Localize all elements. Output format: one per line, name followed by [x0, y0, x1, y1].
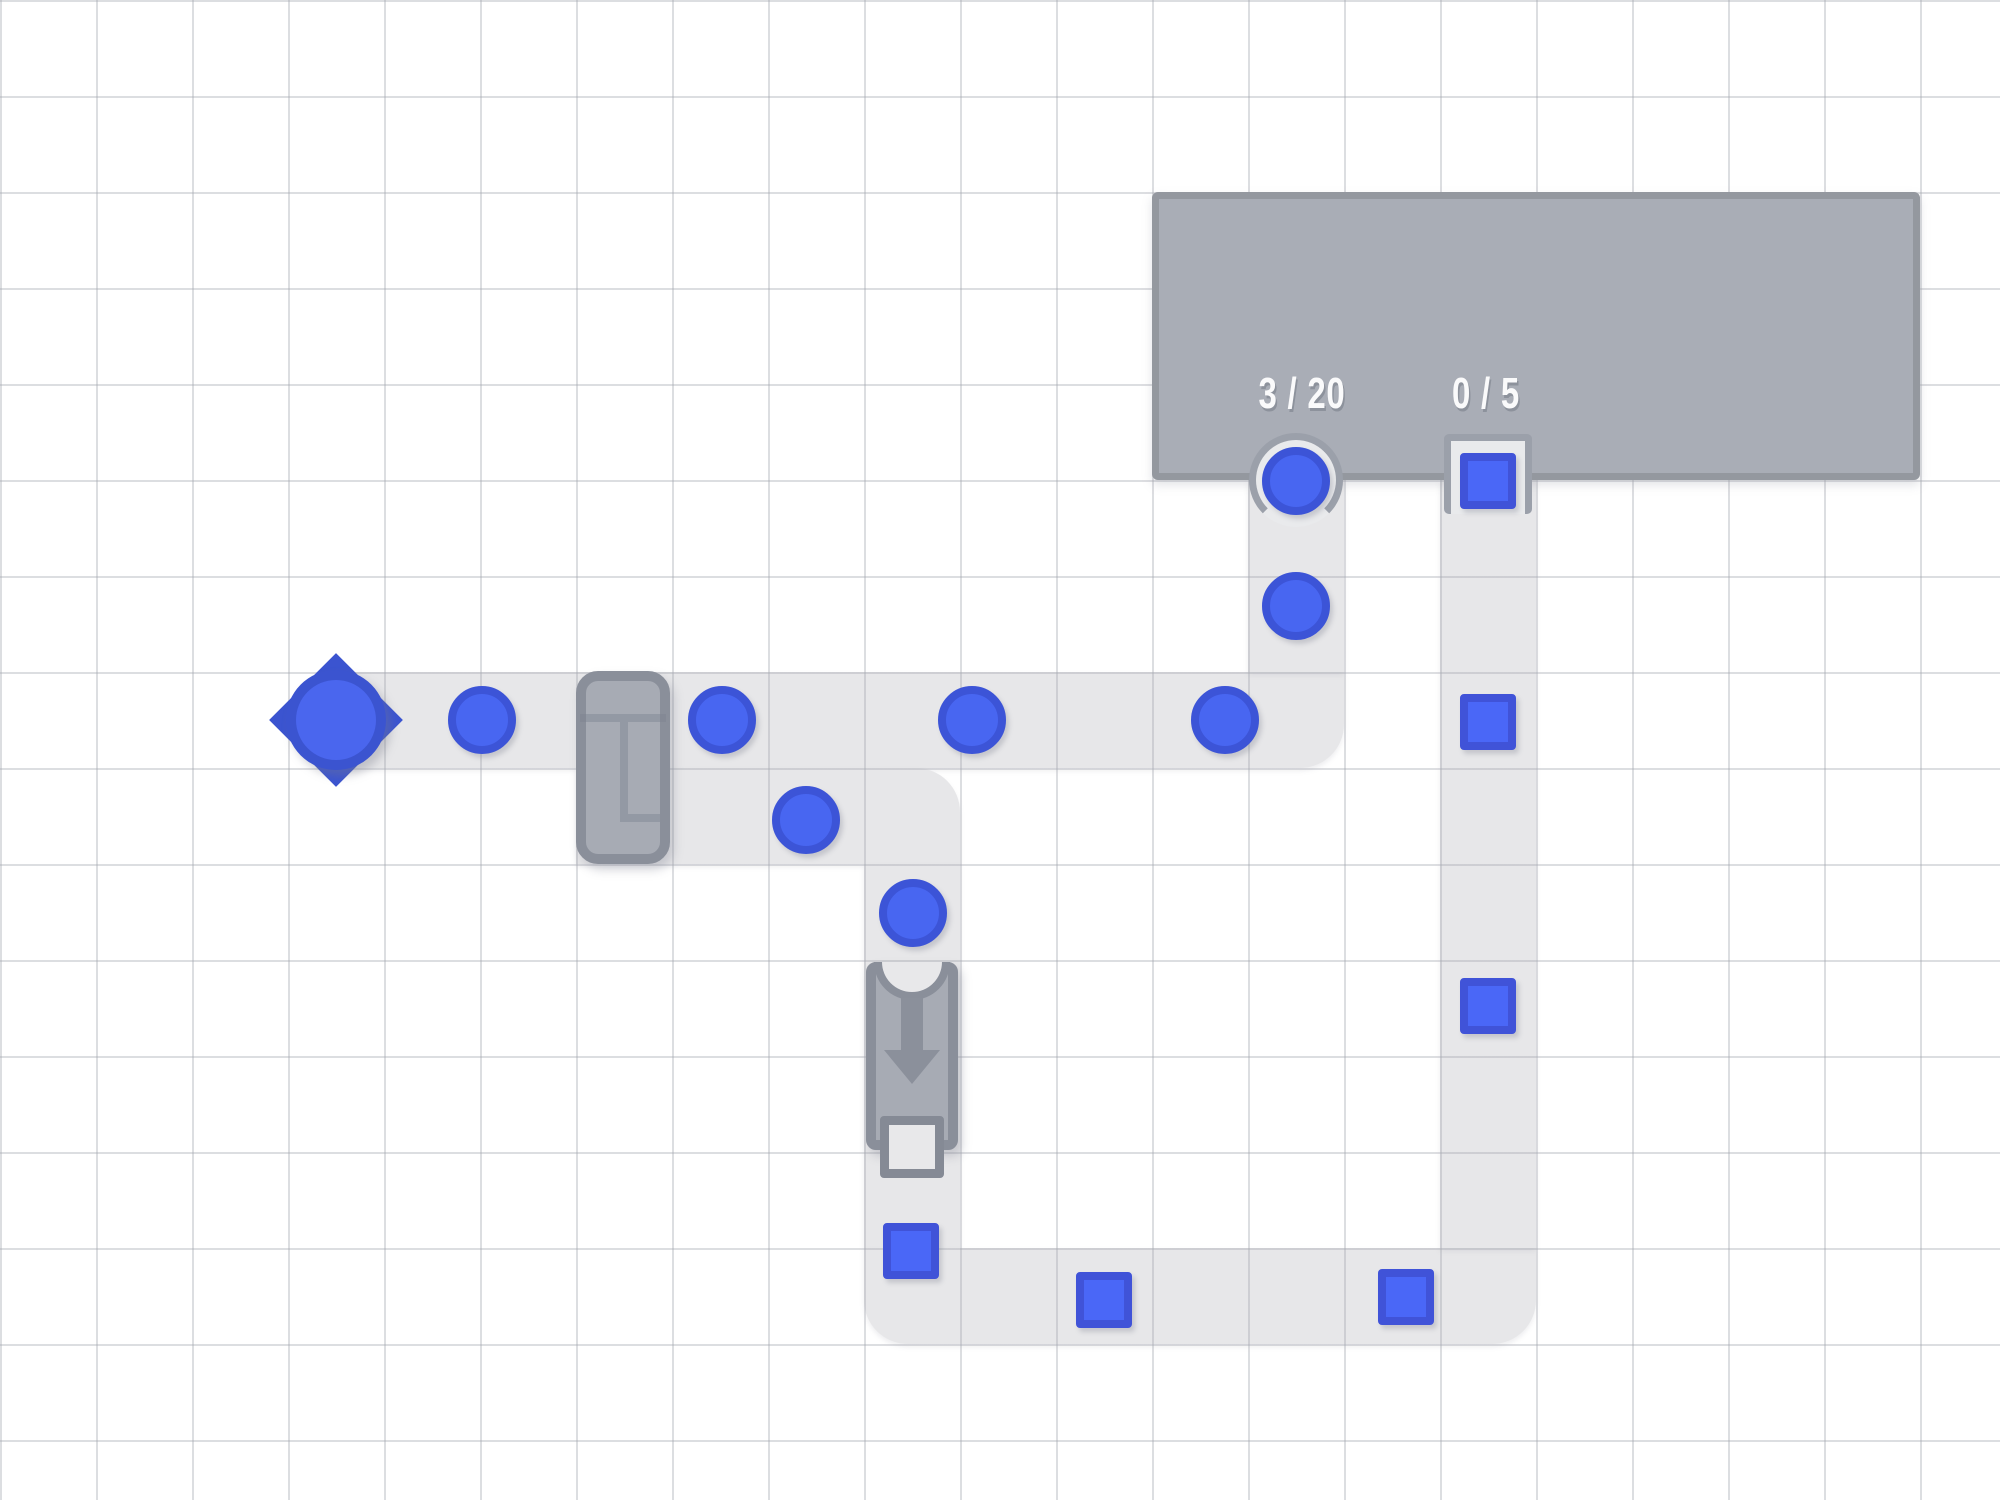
item-square — [1460, 978, 1516, 1034]
item-circle — [772, 786, 840, 854]
item-circle — [1191, 686, 1259, 754]
item-circle — [1262, 572, 1330, 640]
item-square — [1378, 1269, 1434, 1325]
item-square — [1076, 1272, 1132, 1328]
item-circle — [1262, 447, 1330, 515]
item-circle — [938, 686, 1006, 754]
item-square — [883, 1223, 939, 1279]
item-square — [1460, 694, 1516, 750]
item-square — [1460, 453, 1516, 509]
item-circle — [688, 686, 756, 754]
factory-grid: 3 / 20 0 / 5 — [0, 0, 2000, 1500]
item-layer — [0, 0, 2000, 1500]
item-circle — [879, 879, 947, 947]
item-circle — [448, 686, 516, 754]
